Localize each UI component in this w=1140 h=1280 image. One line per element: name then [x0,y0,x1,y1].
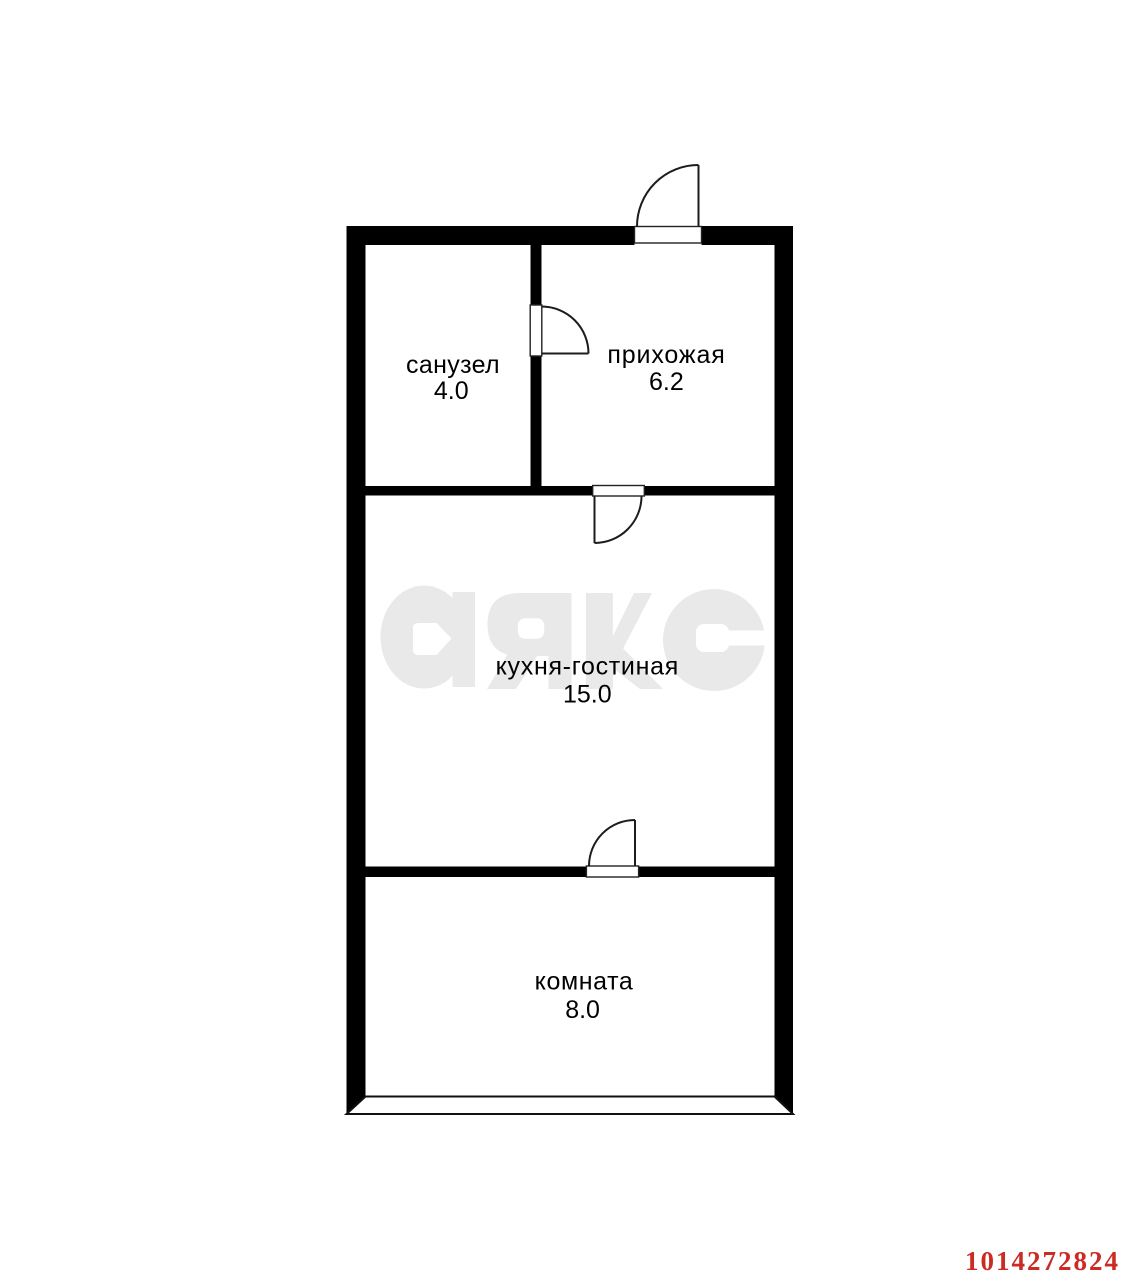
svg-text:1014272824: 1014272824 [965,1246,1120,1276]
svg-text:кухня-гостиная: кухня-гостиная [496,653,679,681]
svg-text:6.2: 6.2 [649,368,684,396]
svg-text:15.0: 15.0 [563,681,612,709]
svg-text:санузел: санузел [406,351,500,379]
svg-text:4.0: 4.0 [434,377,469,405]
svg-text:8.0: 8.0 [565,996,600,1024]
svg-text:прихожая: прихожая [607,341,725,369]
svg-text:комната: комната [535,968,634,996]
